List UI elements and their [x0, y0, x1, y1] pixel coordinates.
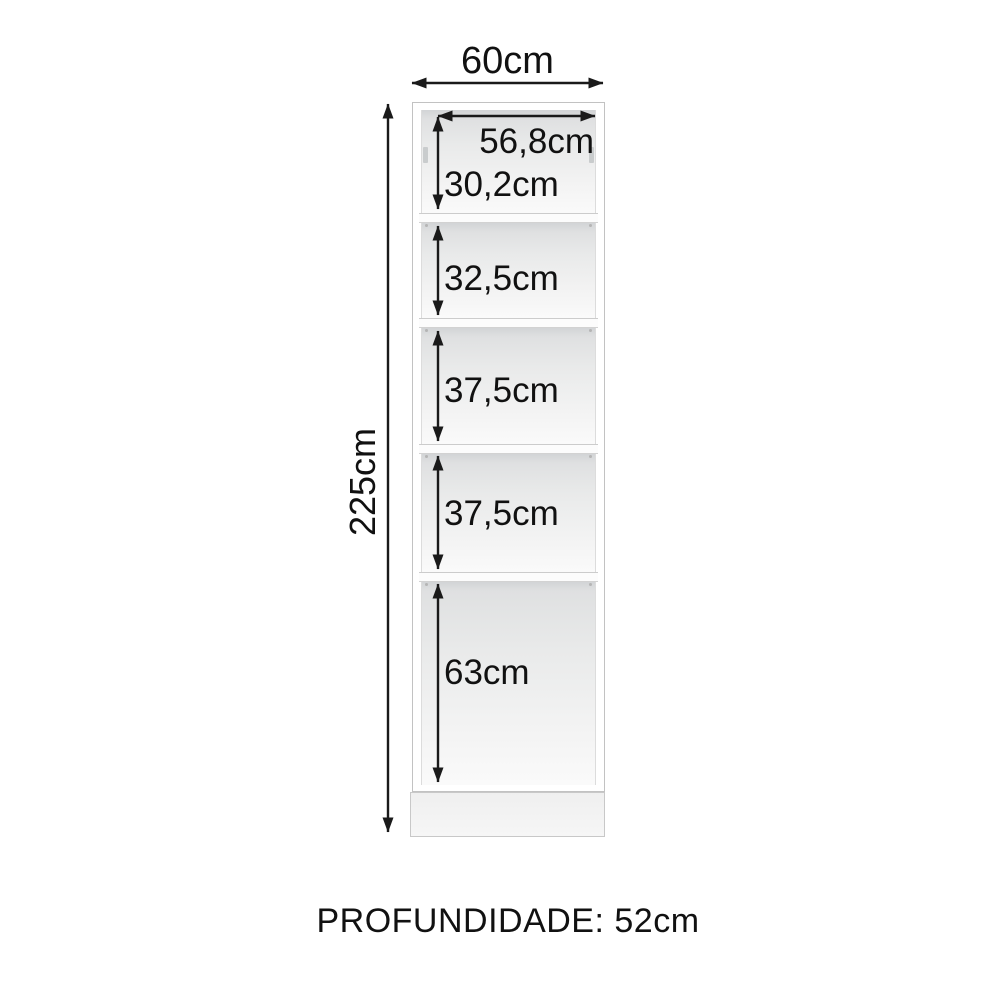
cabinet-shelf-1	[419, 213, 598, 223]
hinge-plate-left	[423, 147, 428, 163]
overall-width-label: 60cm	[412, 41, 603, 82]
section-3-label: 37,5cm	[444, 372, 559, 410]
depth-label: PROFUNDIDADE: 52cm	[8, 903, 1000, 940]
section-4-label: 37,5cm	[444, 495, 559, 533]
dimension-diagram: 60cm 225cm 56,8cm 30,2cm 32,5cm 37,5cm 3…	[0, 0, 1000, 1000]
cabinet-shelf-3	[419, 444, 598, 454]
cabinet-shelf-2	[419, 318, 598, 328]
section-1-label: 30,2cm	[444, 166, 559, 204]
overall-height-label: 225cm	[343, 402, 383, 562]
section-5-label: 63cm	[444, 654, 530, 692]
cabinet-base	[410, 792, 605, 837]
cabinet-shelf-4	[419, 572, 598, 582]
section-2-label: 32,5cm	[444, 260, 559, 298]
inner-width-label: 56,8cm	[440, 123, 594, 161]
